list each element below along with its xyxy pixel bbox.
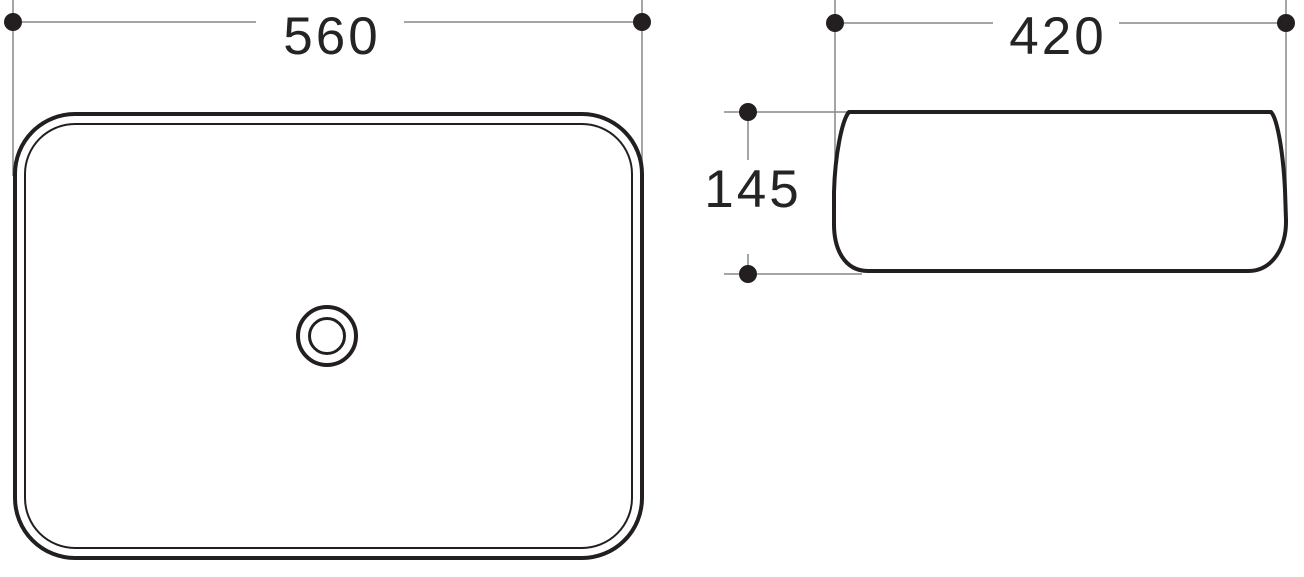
dot-420-left <box>826 14 844 32</box>
dot-560-right <box>633 13 651 31</box>
dot-420-right <box>1277 14 1295 32</box>
basin-outer-rim <box>15 114 642 558</box>
basin-top-view <box>15 114 642 558</box>
technical-drawing-sheet: 560 420 145 <box>0 0 1304 577</box>
basin-dimension-diagram <box>0 0 1304 577</box>
side-profile-outline <box>834 112 1286 271</box>
top-view-width-label: 560 <box>283 10 380 63</box>
dot-560-left <box>4 13 22 31</box>
basin-side-view <box>834 112 1286 271</box>
side-view-height-label: 145 <box>704 163 801 216</box>
dot-145-top <box>739 103 757 121</box>
dot-145-bottom <box>739 265 757 283</box>
side-view-width-label: 420 <box>1009 10 1106 63</box>
